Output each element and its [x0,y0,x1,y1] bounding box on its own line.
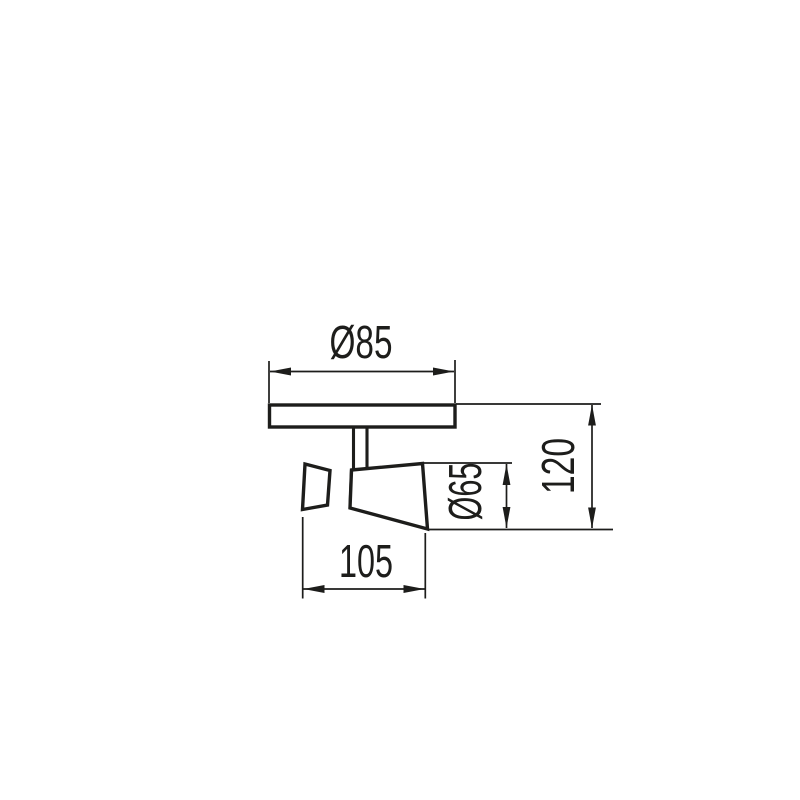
arrowhead-left-icon [304,585,325,593]
dimension-body-length: 105 [303,517,426,599]
drawing-canvas: Ø85 105 Ø65 [0,0,800,800]
dimension-label-head-diameter: Ø65 [439,463,491,521]
arrowhead-up-icon [503,464,511,485]
arrowhead-left-icon [270,368,291,376]
arrowhead-right-icon [404,585,425,593]
dimension-plate-diameter: Ø85 [269,316,455,403]
head-back-cap [303,464,331,510]
dimension-head-diameter: Ø65 [424,463,512,529]
dimension-annotations: Ø85 105 Ø65 [269,316,613,599]
technical-drawing-svg: Ø85 105 Ø65 [0,0,800,800]
fixture-outline [270,405,456,529]
arrowhead-down-icon [588,508,596,529]
arrowhead-up-icon [588,405,596,426]
arrowhead-right-icon [433,368,454,376]
mounting-plate [270,405,456,427]
arrowhead-down-icon [503,507,511,528]
dimension-label-plate-diameter: Ø85 [330,316,393,368]
head-cone [350,464,428,530]
dimension-label-overall-height: 120 [532,438,584,494]
dimension-label-body-length: 105 [339,535,393,587]
